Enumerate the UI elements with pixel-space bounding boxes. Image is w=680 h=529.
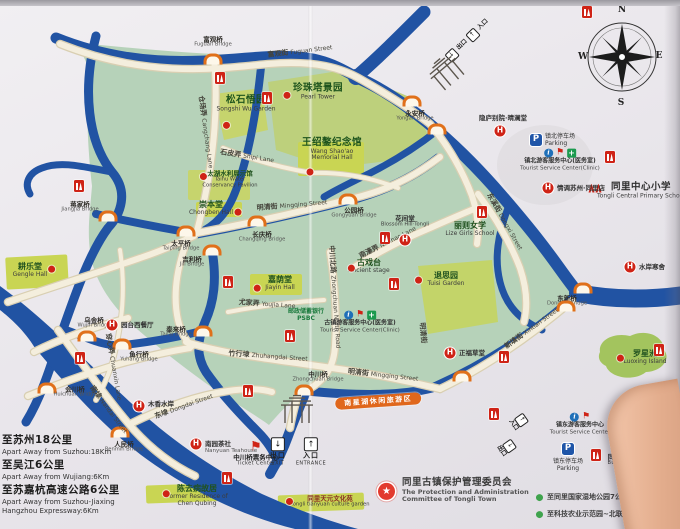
psbc-bank: 邮政储蓄银行PSBC xyxy=(288,309,324,323)
parking-north: P镇北停车场Parking xyxy=(530,134,542,146)
toilet-10 xyxy=(75,352,85,364)
toilet-icon xyxy=(654,344,664,356)
green-dot-icon xyxy=(536,494,543,501)
bridge-arch-icon xyxy=(453,371,472,382)
dist-wujiang-cn: 至吴江6公里 xyxy=(2,460,65,472)
poi-dot-icon xyxy=(347,264,354,271)
hotel-h-icon: H xyxy=(445,348,456,359)
zone-banner: 南星湖休闲旅游区 xyxy=(335,392,422,410)
poi-chongben-hall: 崇本堂Chongben Hall xyxy=(189,201,233,217)
bridge-small-3 xyxy=(453,371,472,382)
poi-dot-icon xyxy=(286,497,293,504)
hotel-yuantai-restaurant: H园台西餐厅 xyxy=(107,320,118,331)
bridge-arch-icon xyxy=(428,124,447,135)
hotel-blossom-hill-mark: H xyxy=(400,235,411,246)
bridge-arch-icon xyxy=(177,226,196,237)
poi-dot-icon xyxy=(234,208,241,215)
poi-wangshaoao-memorial: 王绍鏊纪念馆Wang Shao'aoMemorial Hall xyxy=(302,138,362,162)
toilet-14 xyxy=(489,408,499,420)
bridge-arch-icon xyxy=(557,301,576,312)
toilet-icon xyxy=(222,472,232,484)
green-dot-icon xyxy=(536,511,543,518)
toilet-icon xyxy=(243,385,253,397)
exit-arrow-icon: ↓ xyxy=(271,437,285,451)
toilet-icon xyxy=(74,180,84,192)
medical-cross-icon: + xyxy=(367,311,376,320)
poi-taihu-pavilion: 太湖水利展示馆Taihu WaterConservancy Pavilion xyxy=(202,171,257,190)
poi-dot-icon xyxy=(200,173,207,180)
street-mingqing-v: 明清街 xyxy=(417,322,427,344)
poi-jiayin-hall: 嘉荫堂Jiayin Hall xyxy=(265,276,295,292)
bridge-arch-icon xyxy=(204,54,223,65)
service-center-north: i⚑+镇北游客服务中心(医务室)Tourist Service Center(C… xyxy=(520,149,600,172)
bridge-jiangjia: 蒋家桥Jiangjia Bridge xyxy=(99,211,118,222)
ticket-flag-icon: ⚑ xyxy=(250,440,262,455)
toilet-11 xyxy=(389,278,399,290)
street-mingqing-n: 明清街 Mingqing Street xyxy=(256,199,327,213)
hotel-qingdiao-suzhou: H情调苏州·同里店 xyxy=(543,183,554,194)
flag-icon: ⚑ xyxy=(582,413,590,422)
flag-icon: ⚑ xyxy=(356,311,364,320)
marker-layer: 珍珠塔景园Pearl Tower松石悟园Songshi Wu Garden王绍鏊… xyxy=(0,0,680,529)
dist-expressway-en: Apart Away from Suzhou-Jiaxing xyxy=(2,499,115,507)
bridge-yuhang: 鱼行桥Yuhang Bridge xyxy=(113,339,132,350)
info-icon: i xyxy=(544,149,553,158)
bridge-yongan: 永安桥Yongan Bridge xyxy=(403,96,422,107)
toilet-icon xyxy=(262,92,272,104)
bridge-wujin: 乌金桥Wujin Bridge xyxy=(78,331,97,342)
hotel-h-icon: H xyxy=(625,262,636,273)
poi-dot-icon xyxy=(254,284,261,291)
hotel-h-icon: H xyxy=(134,401,145,412)
hotel-h-icon: H xyxy=(495,126,506,137)
exit-entrance-south: ↓出口EXIT ↑入口ENTRANCE xyxy=(270,437,326,466)
toilet-8 xyxy=(223,276,233,288)
hotel-zhengfu-caotang: H正福草堂 xyxy=(445,348,456,359)
entrance-arrow-icon: ↑ xyxy=(465,27,481,43)
toilet-icon xyxy=(499,351,509,363)
poi-gengle-hall: 耕乐堂Gengle Hall xyxy=(13,263,48,279)
star-icon: ★ xyxy=(378,483,395,500)
bridge-gongyuan: 公园桥Gongyuan Bridge xyxy=(339,194,358,205)
bridge-arch-icon xyxy=(194,326,213,337)
toilet-17 xyxy=(499,351,509,363)
poi-dot-icon xyxy=(306,169,313,176)
banner-leisure-zone: 南星湖休闲旅游区 xyxy=(334,386,421,410)
bridge-arch-icon xyxy=(99,211,118,222)
hotel-h-icon: H xyxy=(400,235,411,246)
poi-blossom-hill: 花间堂Blossom Hill·Tongli xyxy=(381,215,429,228)
gate-south xyxy=(280,394,314,428)
toilet-2 xyxy=(262,92,272,104)
poi-dot-icon xyxy=(222,122,229,129)
street-xintian: 新填街 Xintian Street xyxy=(504,307,561,351)
committee: ★同里古镇保护管理委员会The Protection and Administr… xyxy=(378,478,529,504)
note-wetland-park: 至同里国家湿地公园7公里 xyxy=(536,494,629,502)
street-nandai: 南埭 Nandai Street xyxy=(88,385,129,436)
parking-p-icon: P xyxy=(530,134,542,146)
toilet-7 xyxy=(380,232,390,244)
bridge-small-2 xyxy=(557,301,576,312)
entrance-east: ↑入口 xyxy=(507,412,529,433)
poi-dot-icon xyxy=(617,354,624,361)
toilet-5 xyxy=(605,151,615,163)
map-photo: N E S W 珍珠塔景园Pearl Tower松石悟园Songshi Wu G… xyxy=(0,0,680,529)
hotel-yinlu-bieyuan: H隐庐别院·晴澜堂 xyxy=(495,126,506,137)
toilet-icon xyxy=(389,278,399,290)
hotel-h-icon: H xyxy=(107,320,118,331)
bridge-arch-icon xyxy=(203,245,222,256)
entrance-arrow-icon: ↑ xyxy=(304,437,318,451)
dist-wujiang-en: Apart Away from Wujiang:6Km xyxy=(2,474,109,482)
toilet-icon xyxy=(489,408,499,420)
toilet-icon xyxy=(380,232,390,244)
poi-tuisi-garden: 退思园Tuisi Garden xyxy=(428,272,465,288)
toilet-16 xyxy=(591,449,601,461)
toilet-13 xyxy=(222,472,232,484)
bridge-taiping: 太平桥Taiping Bridge xyxy=(177,226,196,237)
toilet-4 xyxy=(582,6,592,18)
street-mingqing-s: 明清街 Mingqing Street xyxy=(347,368,418,383)
bridge-huichuan: 会川桥Huichuan Bridge xyxy=(38,383,57,394)
poi-dot-icon xyxy=(163,490,170,497)
flag-icon: ⚑ xyxy=(556,149,564,158)
toilet-icon xyxy=(605,151,615,163)
poi-tianyuan-culture-garden: 同里天元文化苑Tongli tianyuan culture garden xyxy=(290,495,369,508)
street-youjia-lane: 尤家弄 Youjia Lane xyxy=(238,299,295,311)
street-cangchang-lane: 仓场弄 Cangchang Lane xyxy=(196,95,214,169)
toilet-icon xyxy=(285,330,295,342)
poi-dot-icon xyxy=(416,276,423,283)
bridge-jili: 吉利桥Jili Bridge xyxy=(203,245,222,256)
poi-ancient-stage: 古戏台Ancient stage xyxy=(348,259,389,275)
toilet-icon xyxy=(477,206,487,218)
toilet-12 xyxy=(243,385,253,397)
bridge-changqing: 长庆桥Changqing Bridge xyxy=(248,216,267,227)
service-center-town: i⚑+古镇游客服务中心(医务室)Tourist Service Center(C… xyxy=(320,311,400,334)
poi-lize-girls-school: 丽则女学Lize Girls School xyxy=(445,222,494,238)
toilet-9 xyxy=(285,330,295,342)
bridge-dongxin: 东新桥Dongxin Bridge xyxy=(574,283,593,294)
hotel-h-icon: H xyxy=(191,439,202,450)
hotel-muxiang-shuian: H木香水岸 xyxy=(134,401,145,412)
toilet-icon xyxy=(582,6,592,18)
hotel-shuian-hanshe: H水岸寒舍 xyxy=(625,262,636,273)
poi-chen-qubing-residence: 陈去病故居Former Residence ofChen Qubing xyxy=(166,485,228,507)
bridge-arch-icon xyxy=(113,339,132,350)
parking-p-icon: P xyxy=(562,443,574,455)
poi-dot-icon xyxy=(284,92,291,99)
street-fuguan: 富观街 Fuguan Street xyxy=(267,44,333,60)
toilet-15 xyxy=(654,344,664,356)
dist-expressway-cn: 至苏嘉杭高速公路6公里 xyxy=(2,485,120,497)
toilet-1 xyxy=(215,72,225,84)
bridge-fuguan: 富观桥Fuguan Bridge xyxy=(204,54,223,65)
gate-icon xyxy=(280,394,314,424)
medical-cross-icon: + xyxy=(567,149,576,158)
gate-icon xyxy=(423,49,468,94)
bridge-arch-icon xyxy=(574,283,593,294)
hotel-h-icon: H xyxy=(543,183,554,194)
bridge-small-1 xyxy=(428,124,447,135)
parking-east: P镇东停车场Parking xyxy=(562,443,574,455)
dist-suzhou-cn: 至苏州18公里 xyxy=(2,435,73,447)
hotel-nanyuan-teahouse: H南园茶社Nanyuan Teahouse xyxy=(191,439,202,450)
bridge-tailai: 泰来桥Tailai Bridge xyxy=(194,326,213,337)
dist-suzhou-en: Apart Away from Suzhou:18Km xyxy=(2,449,111,457)
gate-north xyxy=(423,49,471,97)
bridge-arch-icon xyxy=(403,96,422,107)
toilet-icon xyxy=(75,352,85,364)
bridge-arch-icon xyxy=(78,331,97,342)
toilet-3 xyxy=(74,180,84,192)
dist-expressway-en2: Hangzhou Expressway:6Km xyxy=(2,508,99,516)
poi-dot-icon xyxy=(49,265,56,272)
toilet-icon xyxy=(591,449,601,461)
poi-pearl-tower: 珍珠塔景园Pearl Tower xyxy=(293,83,343,100)
toilet-icon xyxy=(223,276,233,288)
street-zhuhangdai: 竹行埭 Zhuhangdai Street xyxy=(228,350,308,363)
bridge-arch-icon xyxy=(248,216,267,227)
service-center-east: i⚑镇东游客服务中心Tourist Service Center xyxy=(550,413,610,436)
toilet-icon xyxy=(215,72,225,84)
toilet-6 xyxy=(477,206,487,218)
info-icon: i xyxy=(344,311,353,320)
info-icon: i xyxy=(570,413,579,422)
street-shipi-lane: 石皮弄 Shipi Lane xyxy=(220,149,275,165)
bridge-arch-icon xyxy=(339,194,358,205)
exit-east: ↓出口 xyxy=(495,438,517,459)
